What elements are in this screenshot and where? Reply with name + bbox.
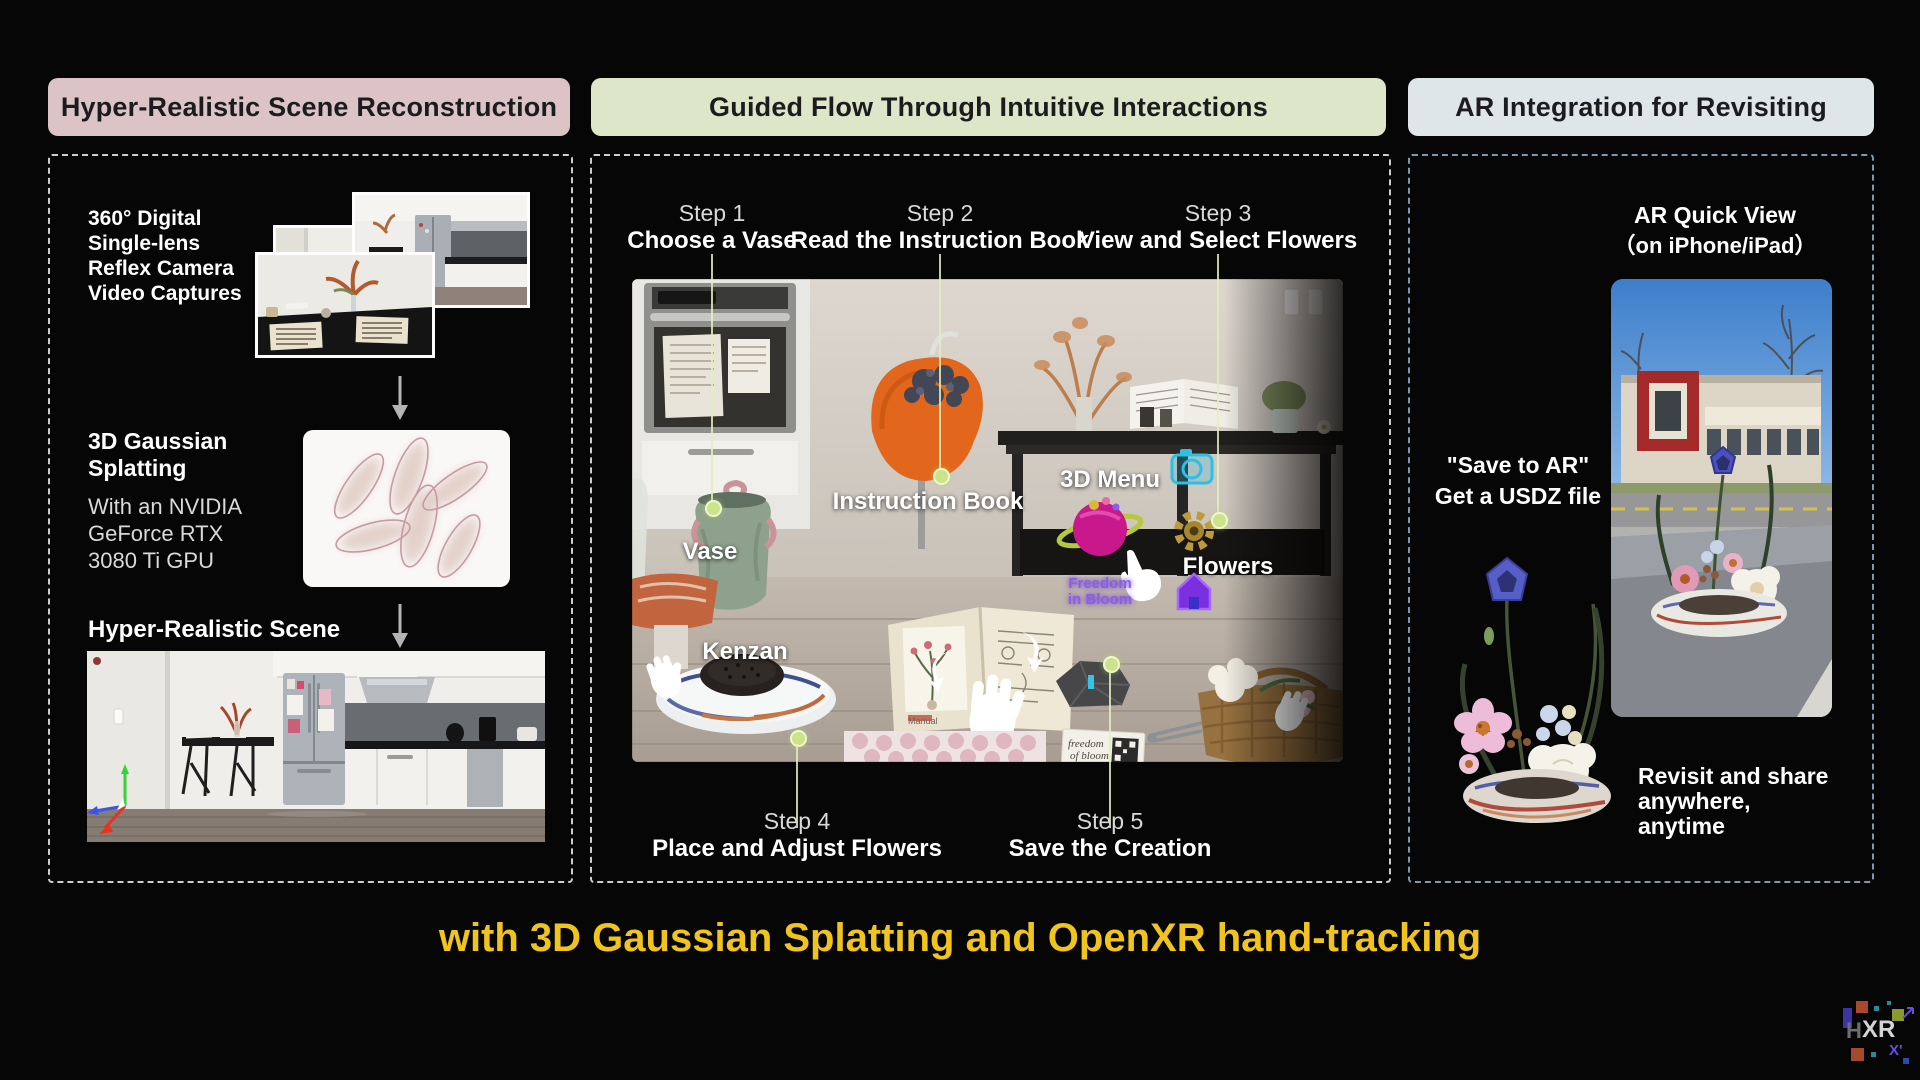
logo-xr: XR <box>1862 1016 1895 1044</box>
camera-3d-menu-icon <box>1172 449 1212 483</box>
desk-capture-photo <box>258 255 432 355</box>
header-guided-flow: Guided Flow Through Intuitive Interactio… <box>591 78 1386 136</box>
logo-h: H <box>1846 1018 1862 1044</box>
usdz-flower-cutout <box>1443 542 1631 837</box>
step5-guide-dot <box>1103 656 1120 673</box>
label-kenzan: Kenzan <box>702 638 787 666</box>
logo-arrow-icon <box>1901 1004 1917 1020</box>
step4-guide-dot <box>790 730 807 747</box>
header-ar-integration: AR Integration for Revisiting <box>1408 78 1874 136</box>
label-instruction-book: Instruction Book <box>833 488 1024 516</box>
logo-orange-square-top <box>1856 1001 1868 1013</box>
ar-phone-screenshot <box>1611 279 1832 717</box>
slide: Hyper-Realistic Scene Reconstruction Gui… <box>0 0 1920 1080</box>
gpu-subtitle: With an NVIDIA GeForce RTX 3080 Ti GPU <box>88 493 242 574</box>
card-text-line2: of bloom <box>1070 750 1109 762</box>
step1-guide-line <box>711 254 713 504</box>
label-3d-menu: 3D Menu <box>1060 466 1160 494</box>
step3-number: Step 3 <box>1185 200 1252 227</box>
step4-label: Place and Adjust Flowers <box>652 835 942 863</box>
label-vase: Vase <box>683 538 738 566</box>
gaussian-splat-illustration <box>303 430 510 587</box>
header-left-label: Hyper-Realistic Scene Reconstruction <box>61 92 557 123</box>
hyper-realistic-scene-label: Hyper-Realistic Scene <box>88 616 340 644</box>
freedom-in-bloom-3d-text: Freedom in Bloom <box>1068 576 1132 608</box>
header-scene-reconstruction: Hyper-Realistic Scene Reconstruction <box>48 78 570 136</box>
card-text-line1: freedom <box>1068 738 1104 750</box>
logo-teal-square-2 <box>1887 1001 1891 1005</box>
gaussian-splatting-title: 3D Gaussian Splatting <box>88 428 227 482</box>
reconstructed-scene-image <box>87 651 545 842</box>
step3-label: View and Select Flowers <box>1079 227 1357 255</box>
bottom-caption: with 3D Gaussian Splatting and OpenXR ha… <box>0 916 1920 961</box>
capture-photo-desk <box>255 252 435 358</box>
logo-blue-square-bottom <box>1903 1058 1909 1064</box>
save-to-ar-text: "Save to AR" Get a USDZ file <box>1435 450 1601 512</box>
header-middle-label: Guided Flow Through Intuitive Interactio… <box>709 92 1268 123</box>
step5-number: Step 5 <box>1077 808 1144 835</box>
vr-scene-image <box>632 279 1343 762</box>
step4-number: Step 4 <box>764 808 831 835</box>
step1-guide-dot <box>705 500 722 517</box>
book-manual-label: Manual <box>908 716 938 726</box>
step3-guide-dot <box>1211 512 1228 529</box>
header-right-label: AR Integration for Revisiting <box>1455 92 1827 123</box>
pink-cloth <box>844 731 1046 762</box>
down-arrow-2 <box>388 604 412 650</box>
logo-xprime: X' <box>1889 1042 1903 1059</box>
ar-quick-view-title: AR Quick View <box>1634 202 1796 229</box>
step5-label: Save the Creation <box>1009 835 1212 863</box>
step2-number: Step 2 <box>907 200 974 227</box>
step5-guide-line <box>1109 670 1111 828</box>
logo-orange-square-bottom <box>1851 1048 1864 1061</box>
step2-label: Read the Instruction Book <box>791 227 1090 255</box>
label-flowers: Flowers <box>1183 553 1274 581</box>
step2-guide-line <box>939 254 941 472</box>
capture-method-text: 360° Digital Single-lens Reflex Camera V… <box>88 206 242 306</box>
step1-number: Step 1 <box>679 200 746 227</box>
hxr-lab-logo: H XR X' <box>1843 1000 1918 1075</box>
step2-guide-dot <box>933 468 950 485</box>
down-arrow-1 <box>388 376 412 422</box>
logo-teal-square-1 <box>1874 1006 1879 1011</box>
step1-label: Choose a Vase <box>627 227 796 255</box>
revisit-text: Revisit and share anywhere, anytime <box>1638 764 1828 839</box>
step3-guide-line <box>1217 254 1219 516</box>
ar-quick-view-subtitle: （on iPhone/iPad） <box>1614 228 1817 260</box>
logo-teal-square-3 <box>1871 1052 1876 1057</box>
